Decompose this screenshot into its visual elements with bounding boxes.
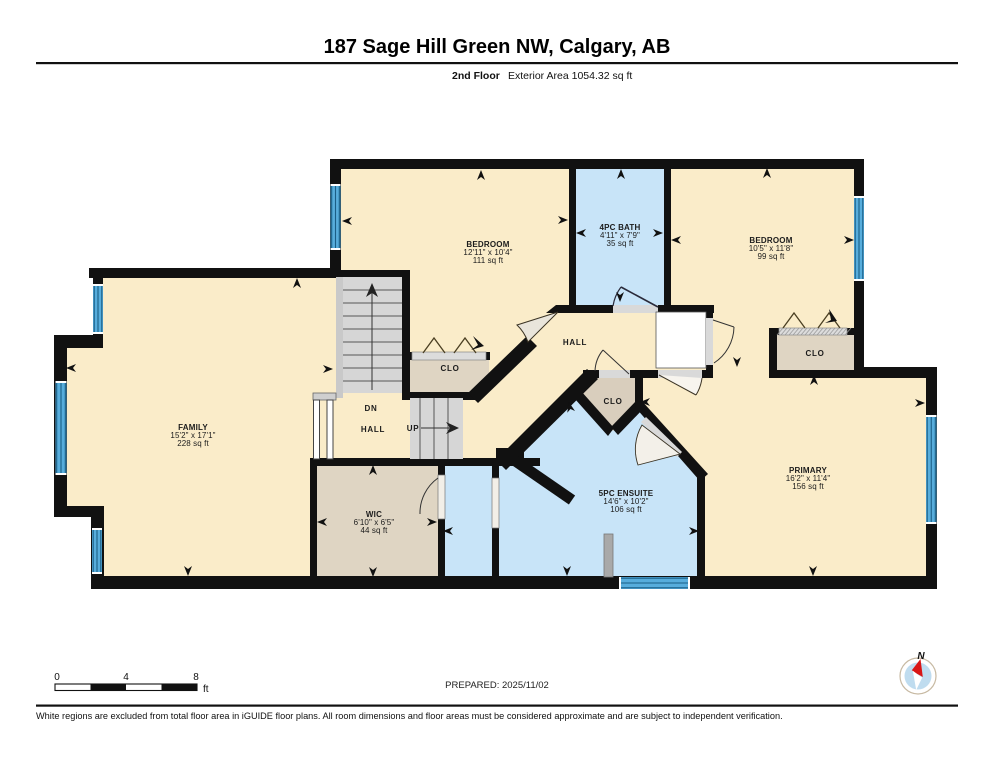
- svg-text:156 sq ft: 156 sq ft: [792, 482, 824, 491]
- svg-text:White regions are excluded fro: White regions are excluded from total fl…: [36, 711, 783, 721]
- svg-text:ft: ft: [203, 684, 209, 695]
- svg-text:CLO: CLO: [604, 397, 623, 406]
- svg-text:8: 8: [193, 672, 199, 683]
- svg-text:DN: DN: [365, 404, 378, 413]
- svg-text:111 sq ft: 111 sq ft: [473, 256, 504, 265]
- svg-text:2nd Floor: 2nd Floor: [452, 70, 500, 82]
- svg-text:N: N: [917, 651, 925, 662]
- svg-text:187 Sage Hill Green NW, Calgar: 187 Sage Hill Green NW, Calgary, AB: [324, 36, 671, 58]
- svg-text:CLO: CLO: [806, 349, 825, 358]
- svg-text:UP: UP: [407, 424, 420, 433]
- svg-text:Exterior Area 1054.32 sq ft: Exterior Area 1054.32 sq ft: [508, 70, 632, 82]
- svg-text:44 sq ft: 44 sq ft: [360, 526, 388, 535]
- svg-text:HALL: HALL: [563, 338, 587, 347]
- svg-text:4: 4: [123, 672, 129, 683]
- svg-text:106 sq ft: 106 sq ft: [610, 505, 642, 514]
- svg-text:99 sq ft: 99 sq ft: [757, 252, 785, 261]
- svg-text:228 sq ft: 228 sq ft: [177, 439, 209, 448]
- svg-text:35 sq ft: 35 sq ft: [606, 239, 634, 248]
- svg-text:PREPARED: 2025/11/02: PREPARED: 2025/11/02: [445, 680, 549, 691]
- svg-text:0: 0: [54, 672, 60, 683]
- svg-text:HALL: HALL: [361, 425, 385, 434]
- svg-text:CLO: CLO: [441, 364, 460, 373]
